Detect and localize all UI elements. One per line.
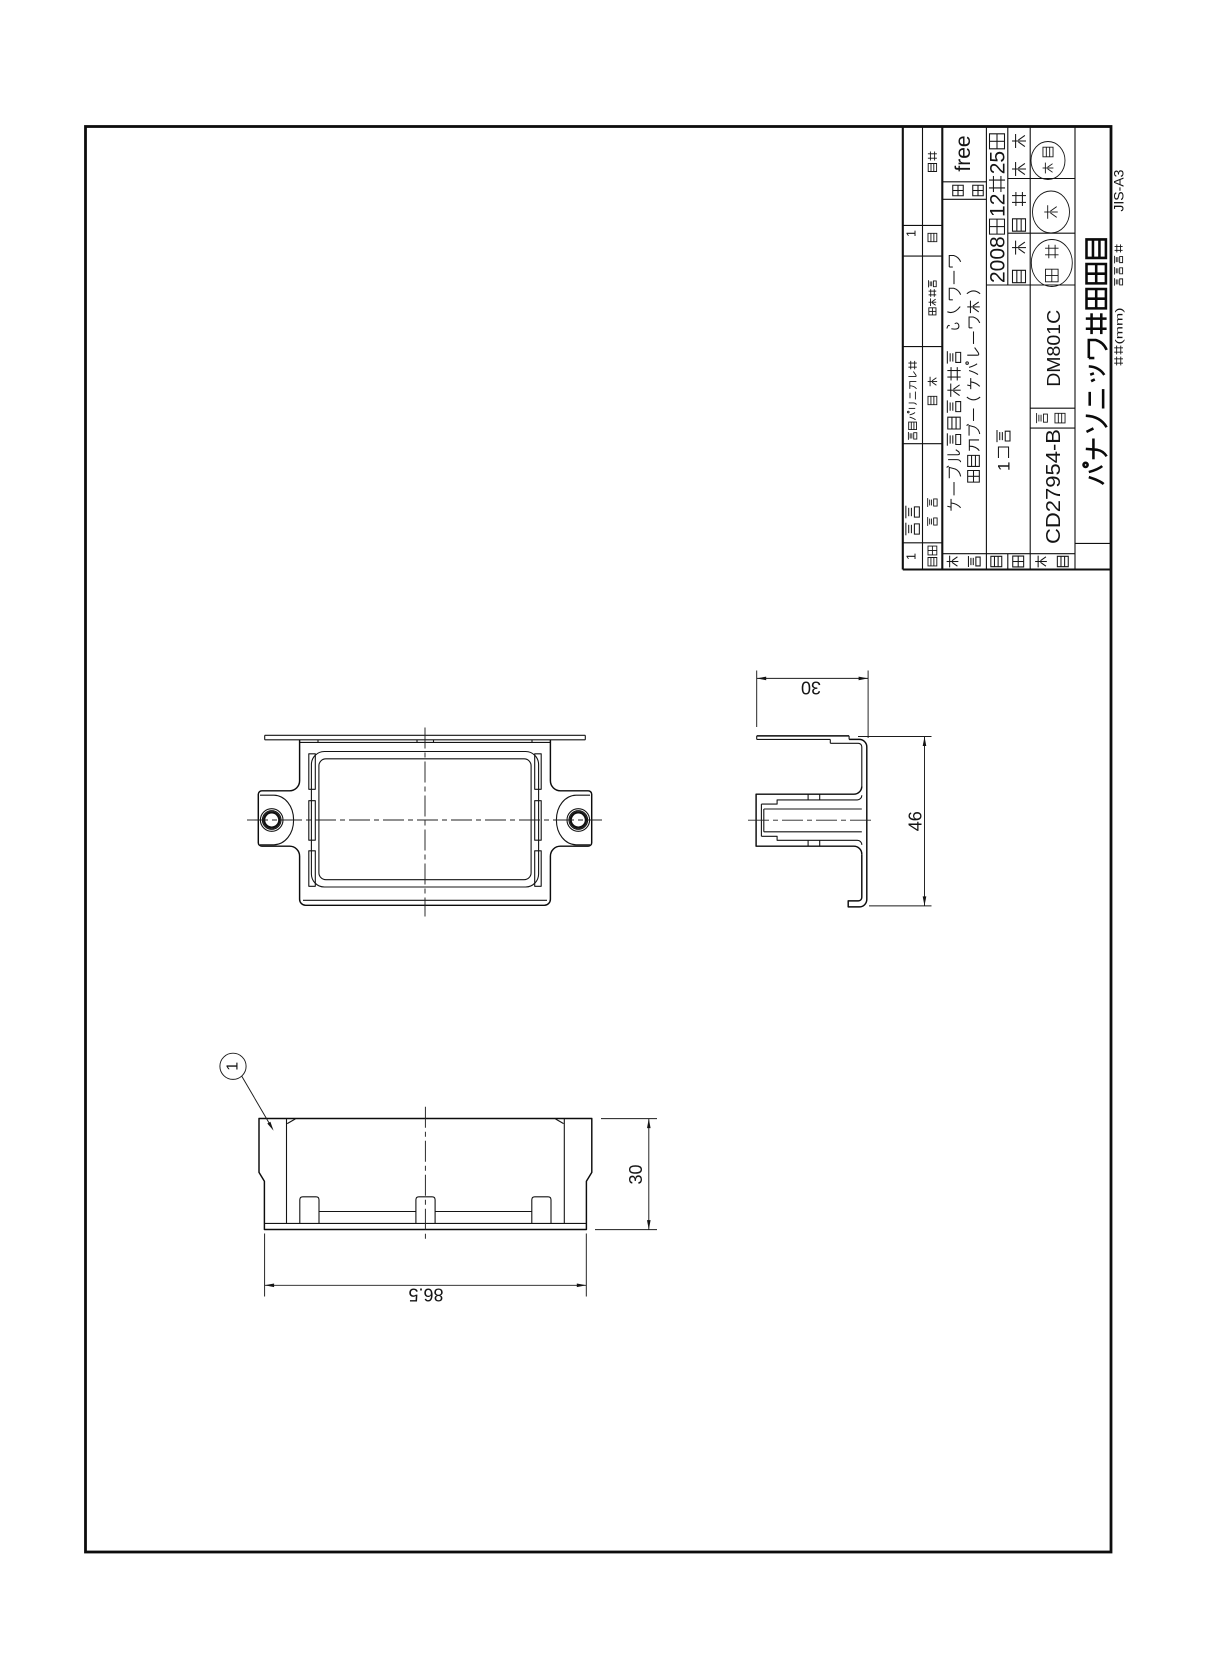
svg-text:25: 25 <box>987 151 1010 174</box>
svg-text:12: 12 <box>987 194 1010 217</box>
svg-text:2008: 2008 <box>987 236 1010 283</box>
svg-text:86.5: 86.5 <box>408 1284 443 1304</box>
svg-text:1: 1 <box>225 1062 242 1071</box>
svg-text:1: 1 <box>905 230 919 237</box>
svg-text:CD27954-B: CD27954-B <box>1043 429 1065 544</box>
svg-text:46: 46 <box>906 811 926 831</box>
svg-text:free: free <box>952 135 975 171</box>
svg-text:30: 30 <box>801 677 821 697</box>
svg-text:1: 1 <box>905 553 919 560</box>
svg-text:(mm): (mm) <box>1113 308 1125 345</box>
svg-text:1: 1 <box>995 462 1014 471</box>
svg-text:30: 30 <box>626 1164 646 1184</box>
svg-text:DM801C: DM801C <box>1043 310 1064 387</box>
svg-text:JIS-A3: JIS-A3 <box>1111 169 1127 211</box>
